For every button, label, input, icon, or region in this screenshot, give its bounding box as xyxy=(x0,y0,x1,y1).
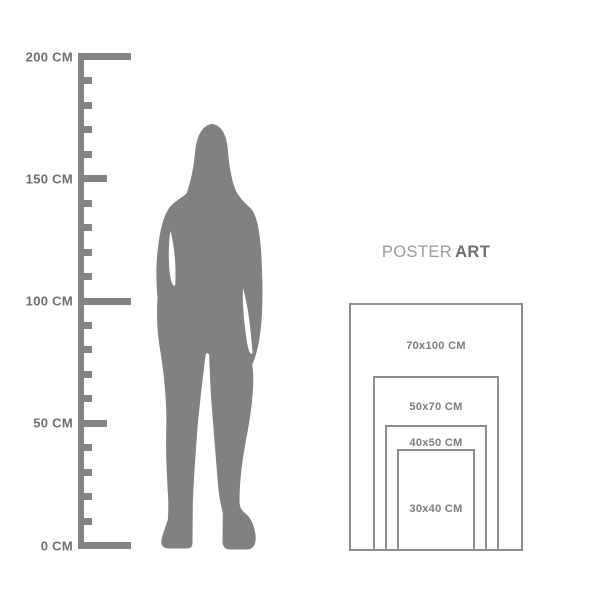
poster-frame-30x40 xyxy=(397,449,474,551)
poster-size-label: 70x100 CM xyxy=(406,340,466,352)
poster-size-chart: 70x100 CM50x70 CM40x50 CM30x40 CM xyxy=(0,0,600,600)
poster-size-label: 40x50 CM xyxy=(409,437,462,449)
size-guide-infographic: 200 CM150 CM100 CM50 CM0 CM POSTERART 70… xyxy=(0,0,600,600)
poster-size-label: 30x40 CM xyxy=(409,503,462,515)
poster-size-label: 50x70 CM xyxy=(409,401,462,413)
